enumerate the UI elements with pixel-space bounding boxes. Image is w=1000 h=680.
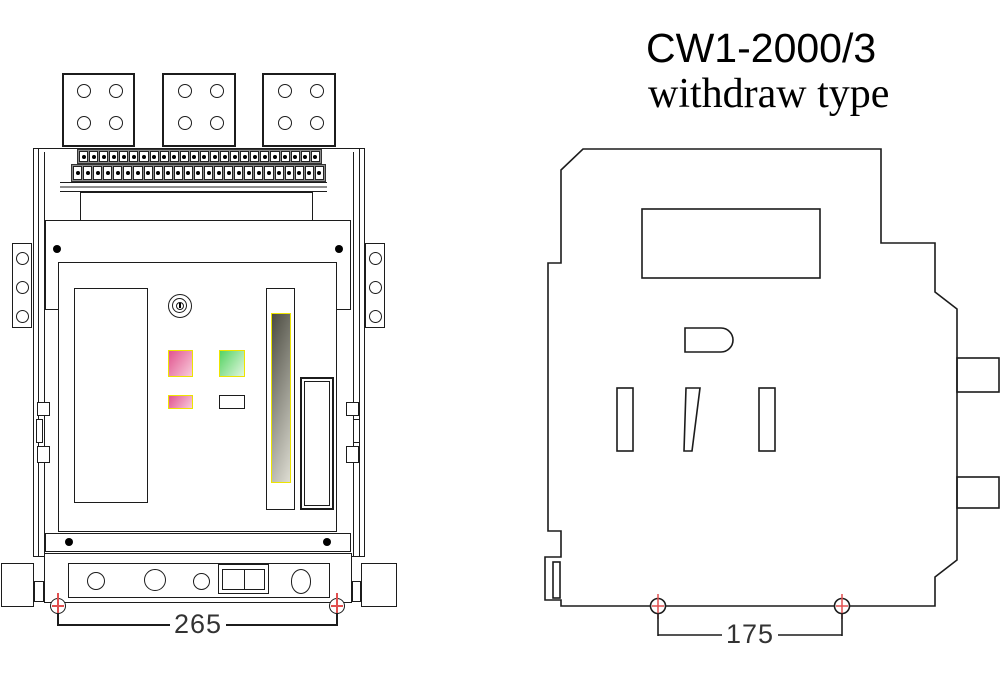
drawing-title-type: withdraw type [648, 72, 988, 116]
terminal-block [129, 151, 138, 162]
pad-hole-icon [310, 84, 324, 98]
terminal-block [113, 166, 122, 180]
terminal-block [174, 166, 183, 180]
terminal-block [244, 166, 253, 180]
terminal-block [139, 151, 148, 162]
terminal-block [254, 166, 263, 180]
terminal-block [264, 166, 273, 180]
terminal-block [301, 151, 310, 162]
terminal-block [99, 151, 108, 162]
terminal-block [103, 166, 112, 180]
terminal-pad-1 [62, 73, 135, 147]
front-view: 265 [0, 0, 440, 680]
terminal-block [281, 151, 290, 162]
indicator-window-pink [168, 395, 193, 409]
terminal-pad-3 [262, 73, 336, 147]
pad-hole-icon [77, 116, 91, 130]
terminal-block [170, 151, 179, 162]
terminal-pad-2 [162, 73, 236, 147]
screw-icon [335, 245, 343, 253]
pad-hole-icon [178, 84, 192, 98]
foot-right [361, 563, 397, 607]
draw-switch-divider [244, 570, 246, 589]
base-hole-small-2 [193, 573, 210, 590]
pad-hole-icon [109, 116, 123, 130]
terminal-block [220, 151, 229, 162]
bracket-hole-icon [369, 252, 382, 265]
terminal-block [204, 166, 213, 180]
terminal-block [79, 151, 88, 162]
side-terminal-lower [957, 477, 999, 508]
terminal-block [119, 151, 128, 162]
terminal-block [234, 166, 243, 180]
bracket-hole-icon [16, 310, 29, 323]
terminal-block [160, 151, 169, 162]
padlock-slot [291, 569, 311, 594]
side-outline [545, 149, 957, 606]
terminal-block [180, 151, 189, 162]
trip-button-pink [168, 350, 193, 377]
terminal-block [270, 151, 279, 162]
terminal-block [190, 151, 199, 162]
terminal-block [240, 151, 249, 162]
side-width-dimension: 175 [720, 621, 780, 648]
indicator-window-blank [219, 395, 245, 409]
pad-hole-icon [210, 84, 224, 98]
terminal-strip-row-bottom [71, 164, 326, 182]
pad-hole-icon [109, 84, 123, 98]
terminal-block [123, 166, 132, 180]
terminal-block [214, 166, 223, 180]
terminal-block [311, 151, 320, 162]
front-width-dimension: 265 [168, 611, 228, 638]
side-slot-inner [304, 381, 330, 506]
terminal-block [250, 151, 259, 162]
dim-line [58, 624, 170, 626]
bracket-hole-icon [16, 281, 29, 294]
terminal-block [83, 166, 92, 180]
strip-base-band [60, 182, 327, 192]
foot-left-step [34, 581, 44, 602]
terminal-block [295, 166, 304, 180]
bracket-hole-icon [16, 252, 29, 265]
side-slot-frame [300, 377, 334, 510]
terminal-block [275, 166, 284, 180]
handle-slot-gradient [271, 313, 291, 483]
pad-hole-icon [278, 116, 292, 130]
rail-tab [36, 419, 43, 443]
terminal-block [184, 166, 193, 180]
anchor-crosshair [331, 605, 343, 607]
foot-left [1, 563, 34, 607]
terminal-block [154, 166, 163, 180]
rail-tab [37, 446, 50, 463]
terminal-block [73, 166, 82, 180]
foot-right-step [352, 581, 361, 602]
pad-hole-icon [310, 116, 324, 130]
terminal-block [144, 166, 153, 180]
pad-hole-icon [278, 84, 292, 98]
terminal-block [89, 151, 98, 162]
keyhole-icon [168, 294, 192, 318]
bracket-right [365, 243, 385, 328]
keyhole-slot [179, 303, 181, 308]
screw-icon [323, 538, 331, 546]
top-recess [80, 192, 313, 221]
rail-tab [353, 419, 360, 443]
terminal-block [133, 166, 142, 180]
base-hole-large [144, 569, 166, 591]
bracket-hole-icon [369, 281, 382, 294]
terminal-block [109, 151, 118, 162]
screw-icon [65, 538, 73, 546]
rail-tab [346, 446, 359, 463]
screw-icon [53, 245, 61, 253]
bracket-left [12, 243, 32, 328]
rating-label-window [74, 288, 148, 503]
pad-hole-icon [77, 84, 91, 98]
side-terminal-upper [957, 358, 999, 392]
terminal-block [210, 151, 219, 162]
base-hole-small-1 [87, 572, 105, 590]
pad-hole-icon [178, 116, 192, 130]
terminal-block [194, 166, 203, 180]
terminal-block [315, 166, 324, 180]
bottom-bar [45, 533, 351, 552]
drawing-title-model: CW1-2000/3 [646, 26, 986, 70]
dim-line [226, 624, 337, 626]
anchor-crosshair [52, 605, 64, 607]
pad-hole-icon [210, 116, 224, 130]
terminal-block [285, 166, 294, 180]
rail-tab [346, 402, 359, 416]
terminal-block [305, 166, 314, 180]
rail-tab [37, 402, 50, 416]
terminal-block [291, 151, 300, 162]
side-view [540, 140, 1000, 645]
terminal-block [224, 166, 233, 180]
terminal-block [164, 166, 173, 180]
terminal-block [150, 151, 159, 162]
drawing-canvas: 265 CW1-2000/3 withdraw type 175 [0, 0, 1000, 680]
bracket-hole-icon [369, 310, 382, 323]
terminal-block [230, 151, 239, 162]
terminal-block [260, 151, 269, 162]
draw-switch-inner [222, 569, 265, 590]
close-button-green [219, 350, 245, 377]
terminal-block [200, 151, 209, 162]
terminal-strip-row-top [77, 149, 322, 164]
terminal-block [93, 166, 102, 180]
draw-switch-frame [218, 564, 269, 594]
